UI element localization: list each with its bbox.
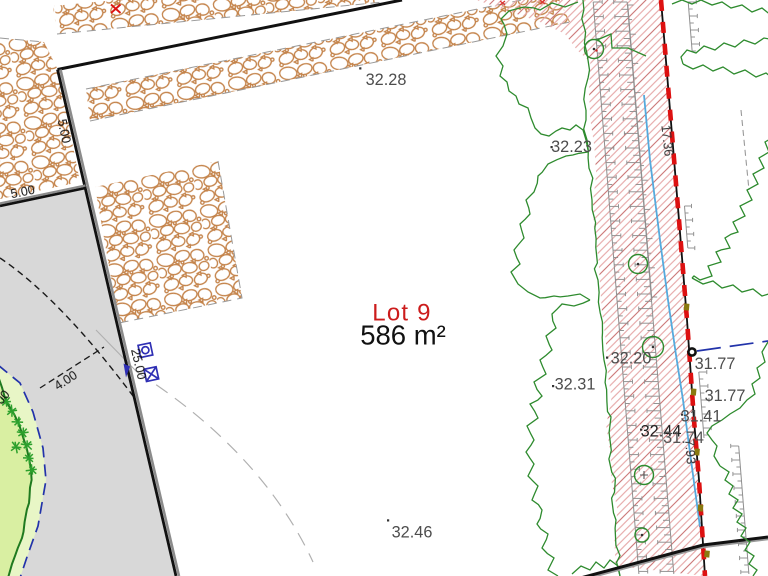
svg-text:7.93: 7.93: [682, 439, 699, 465]
svg-text:32.23: 32.23: [551, 138, 592, 156]
svg-text:32.28: 32.28: [366, 71, 407, 89]
svg-text:586 m²: 586 m²: [360, 320, 446, 351]
svg-text:32.46: 32.46: [392, 524, 433, 542]
svg-text:32.31: 32.31: [555, 376, 596, 394]
svg-text:31.41: 31.41: [681, 408, 722, 426]
svg-text:31.77: 31.77: [695, 355, 736, 373]
svg-text:32.20: 32.20: [611, 350, 652, 368]
svg-text:31.77: 31.77: [705, 387, 746, 405]
